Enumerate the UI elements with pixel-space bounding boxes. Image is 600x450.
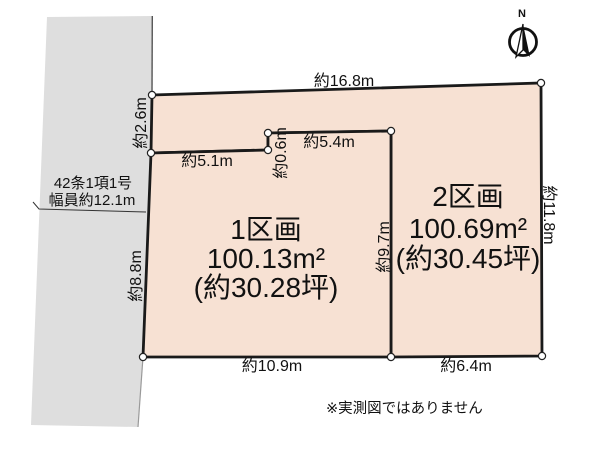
lot-diagram: 約16.8m 約2.6m 約5.1m 約0.6m 約5.4m 約11.8m 約9…: [0, 0, 600, 450]
dimension-divider: 約9.7m: [375, 221, 393, 273]
dimension-left-edge: 約8.8m: [127, 250, 145, 302]
dimension-parcel1-top-right: 約5.4m: [303, 133, 355, 151]
dimension-right-edge: 約11.8m: [540, 185, 558, 244]
road-regulation-line2: 幅員約12.1m: [49, 192, 136, 209]
compass-north-label: N: [518, 8, 526, 20]
parcel-1-area-tsubo: (約30.28坪): [194, 272, 339, 303]
dimension-bottom-left: 約10.9m: [242, 357, 302, 375]
vertex-dot: [387, 127, 394, 134]
road-regulation-line1: 42条1項1号: [54, 175, 132, 192]
dimension-notch: 約0.6m: [272, 127, 290, 179]
north-compass-icon: N: [510, 8, 537, 57]
parcel-1-name: 1区画: [230, 214, 302, 245]
disclaimer-note: ※実測図ではありません: [326, 400, 483, 417]
dimension-bottom-right: 約6.4m: [440, 357, 492, 375]
dimension-top-edge: 約16.8m: [314, 72, 374, 90]
parcel-2-area-tsubo: (約30.45坪): [396, 243, 541, 274]
parcel-2-area-m2: 100.69m²: [409, 213, 527, 244]
dimension-road-frontage: 約2.6m: [132, 97, 150, 149]
vertex-dot: [538, 352, 545, 359]
vertex-dot: [537, 79, 544, 86]
parcel-1-area-m2: 100.13m²: [207, 243, 325, 274]
vertex-dot: [139, 353, 146, 360]
vertex-dot: [264, 146, 271, 153]
vertex-dot: [387, 353, 394, 360]
vertex-dot: [147, 149, 154, 156]
dimension-parcel1-top-left: 約5.1m: [181, 152, 233, 170]
vertex-dot: [264, 129, 271, 136]
parcel-2-name: 2区画: [432, 181, 504, 212]
road-area: [31, 16, 152, 427]
